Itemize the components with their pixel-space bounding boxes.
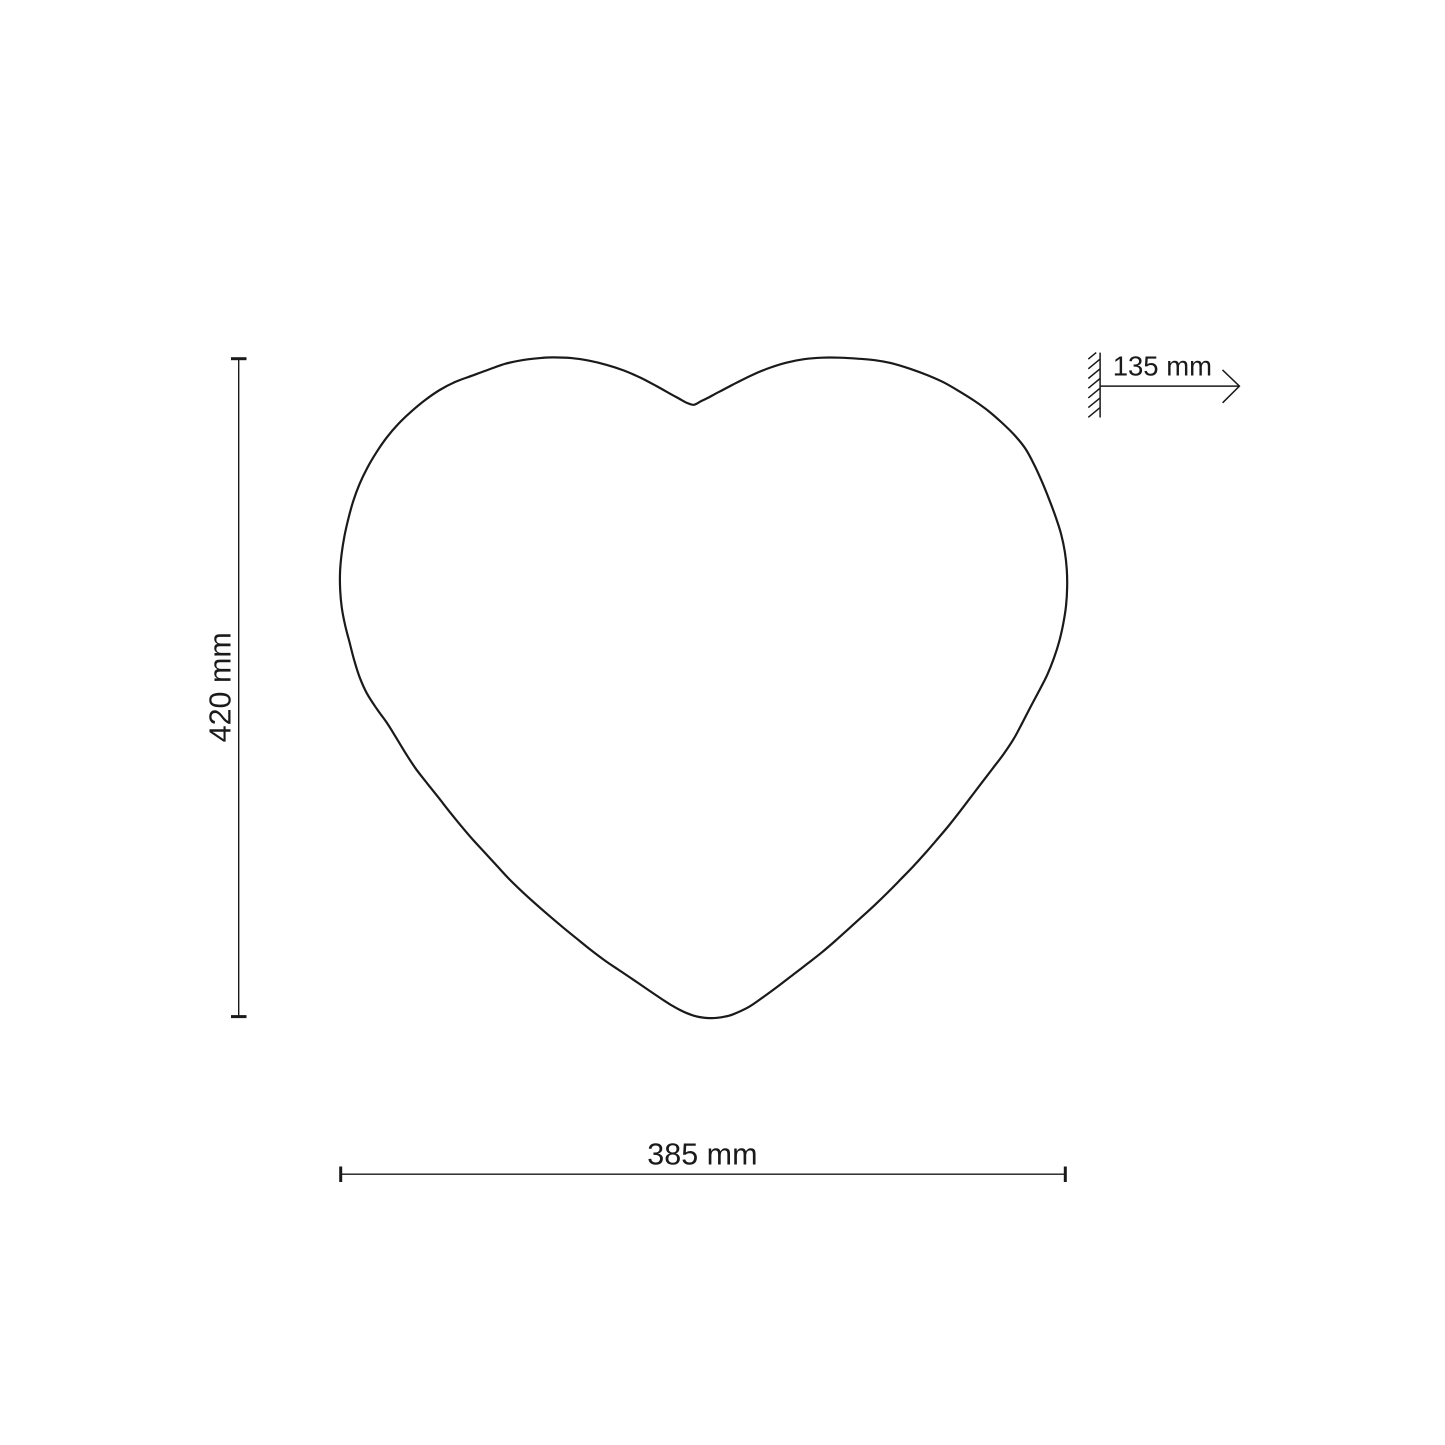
svg-text:420 mm: 420 mm: [203, 632, 237, 742]
svg-text:385 mm: 385 mm: [647, 1137, 757, 1171]
svg-text:135 mm: 135 mm: [1113, 350, 1212, 381]
